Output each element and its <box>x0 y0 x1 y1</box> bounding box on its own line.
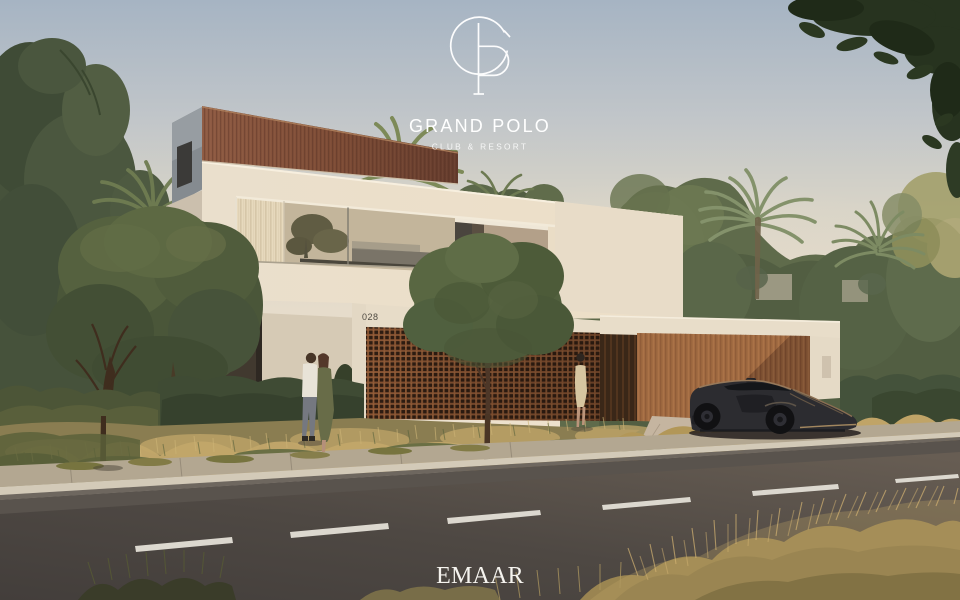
svg-text:GRAND POLO: GRAND POLO <box>409 116 551 136</box>
svg-text:CLUB & RESORT: CLUB & RESORT <box>432 142 529 152</box>
svg-text:EMAAR: EMAAR <box>436 563 524 589</box>
svg-text:028: 028 <box>362 312 379 322</box>
